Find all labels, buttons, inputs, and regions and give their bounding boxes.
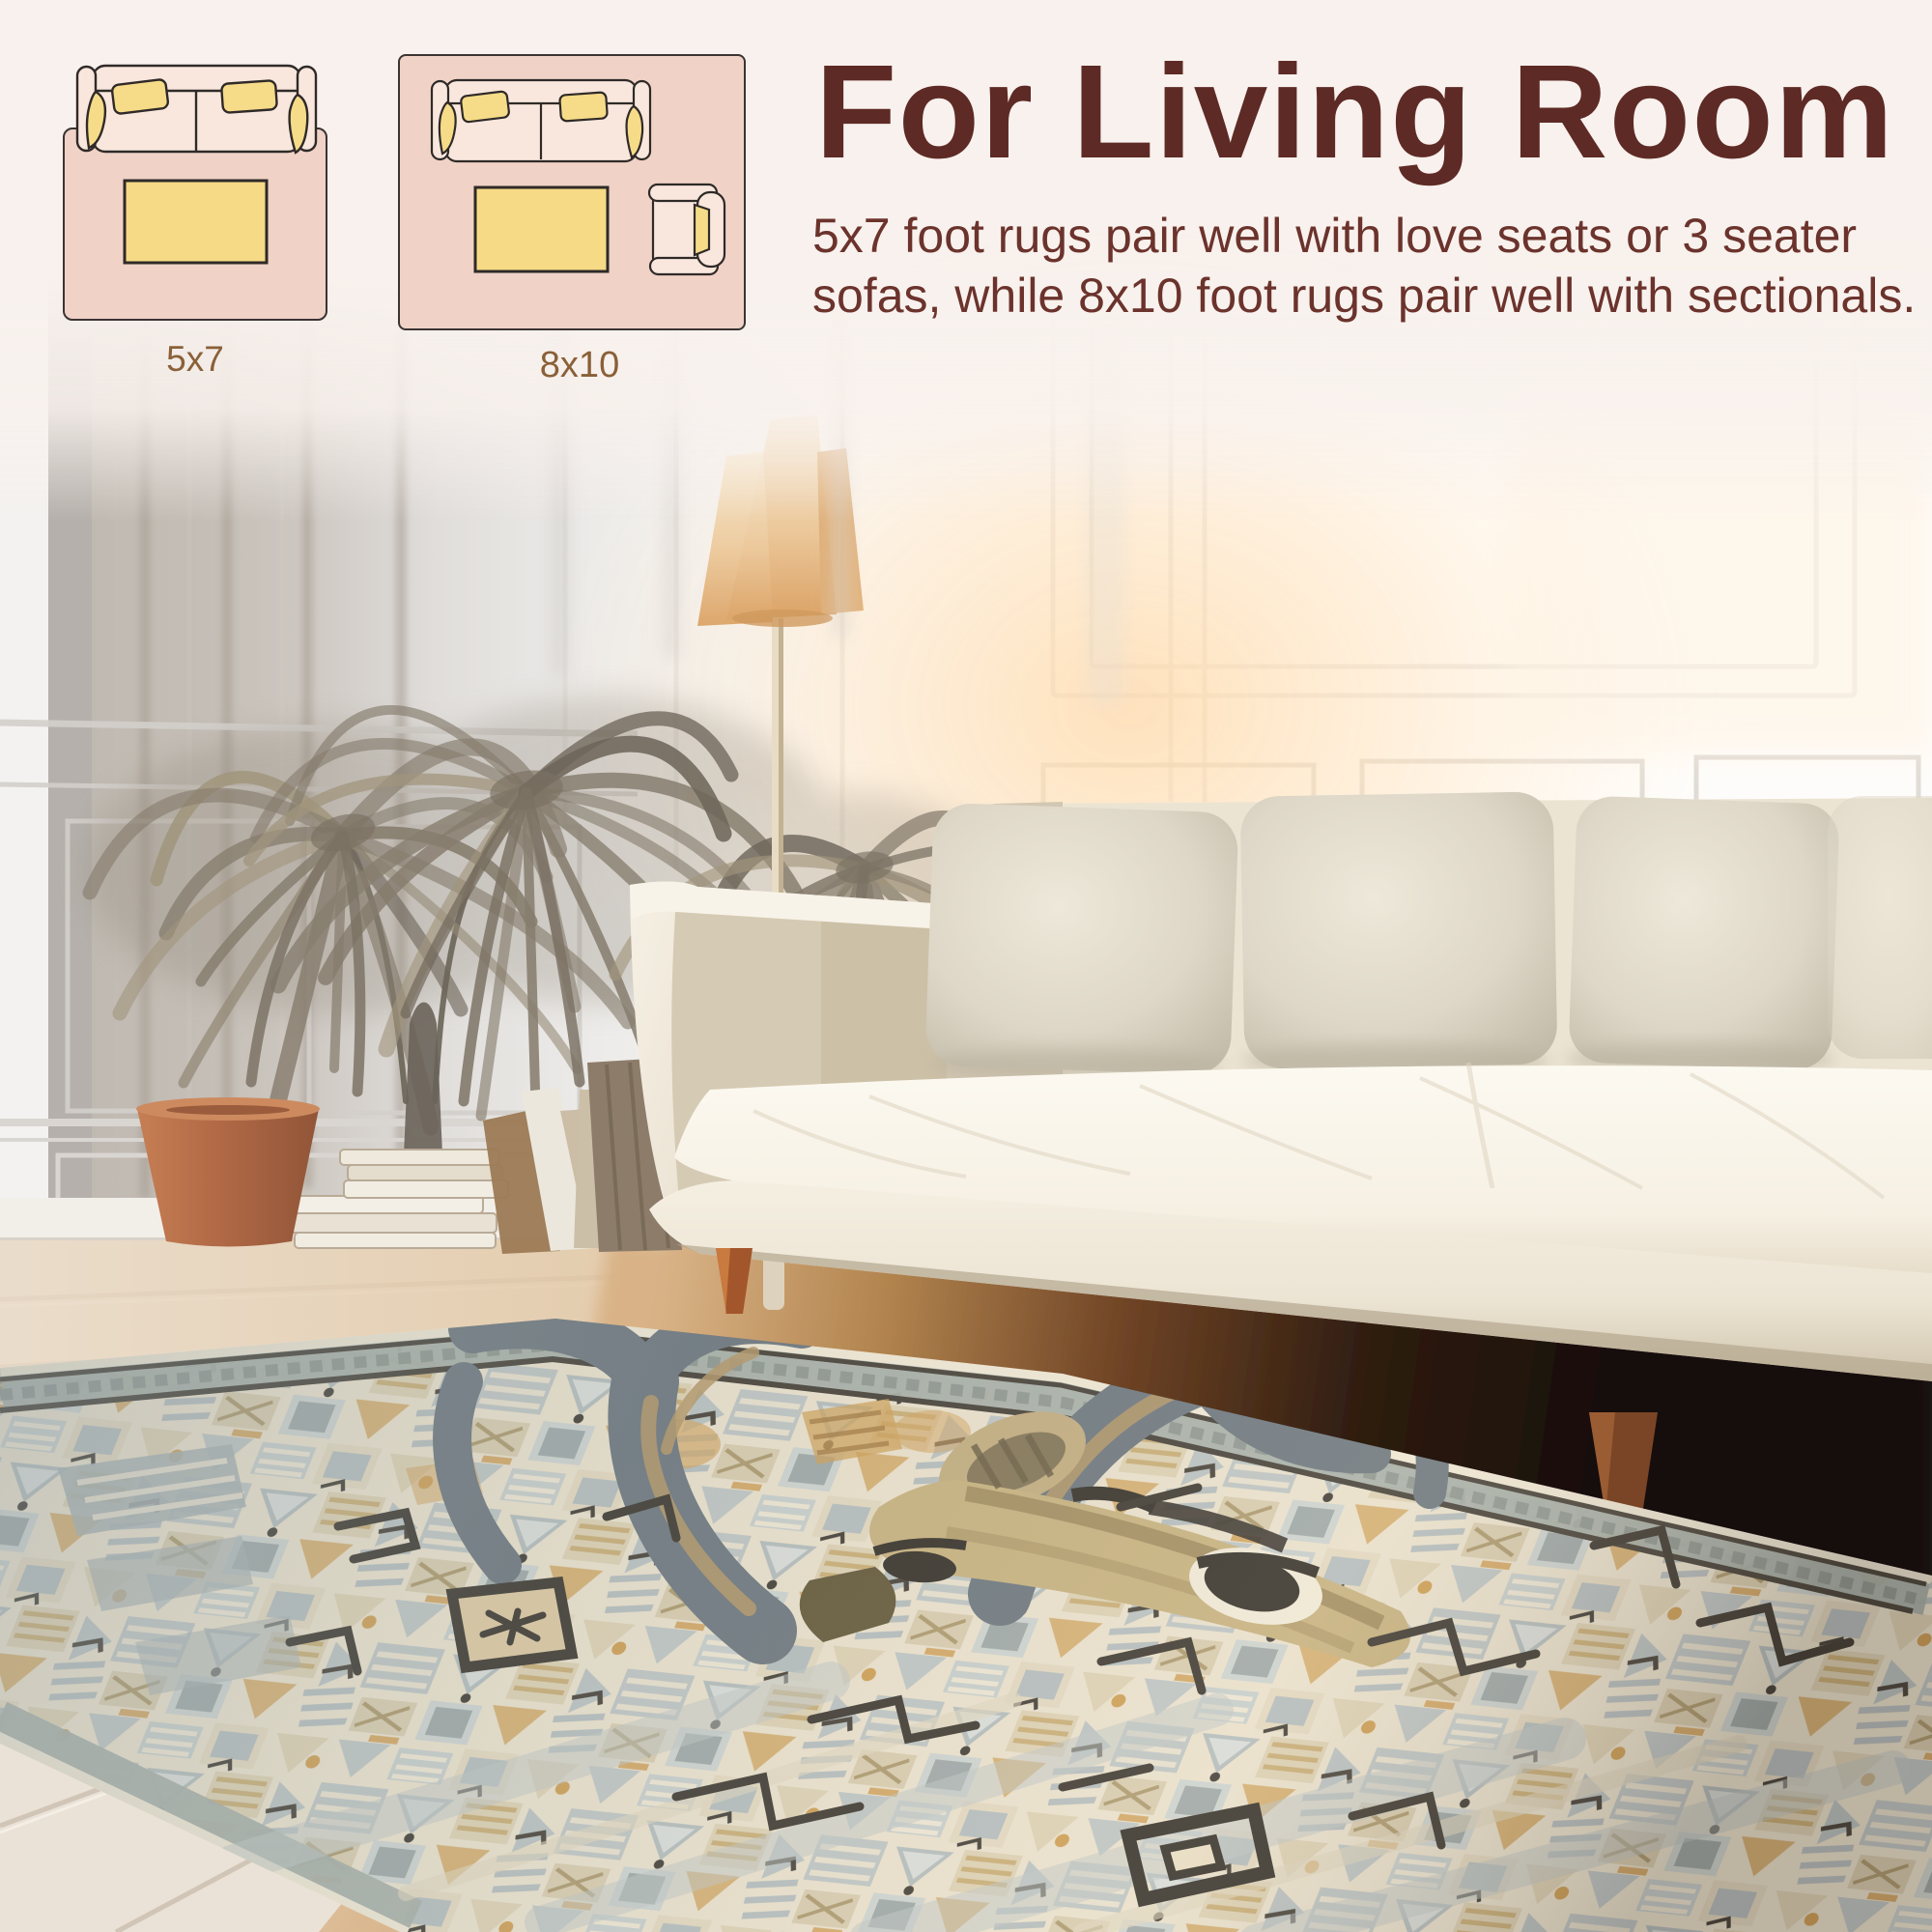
svg-text:8x10: 8x10 — [540, 345, 619, 385]
svg-text:5x7: 5x7 — [166, 339, 224, 379]
